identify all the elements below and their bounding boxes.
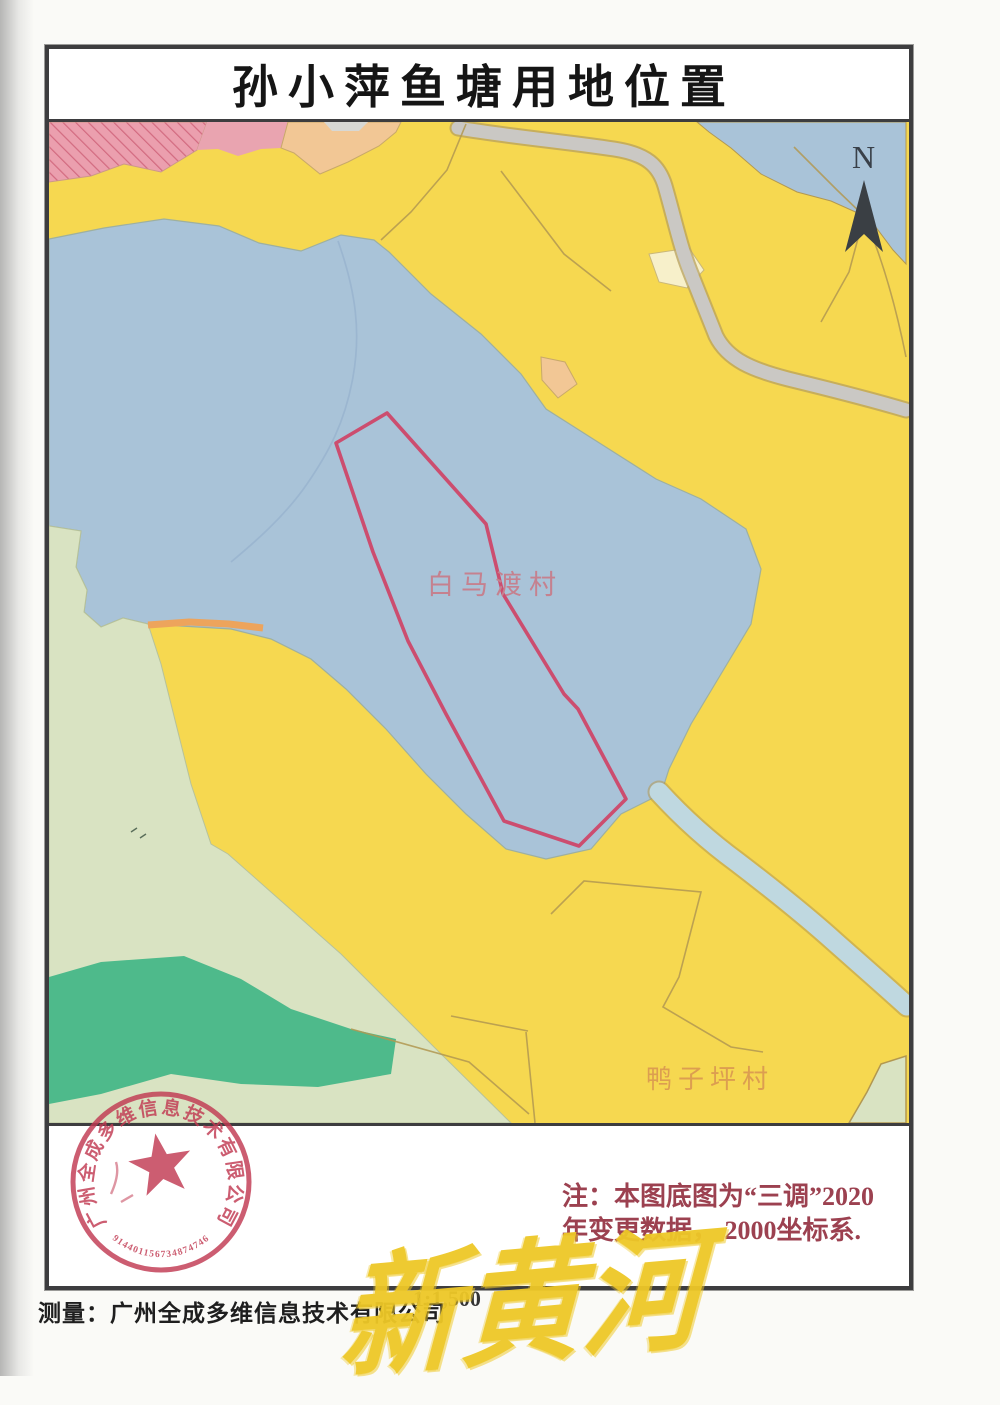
map-canvas: 白马渡村 鸭子坪村 N — [49, 122, 909, 1123]
seal-handmark — [111, 1162, 133, 1202]
seal-serial-text: 914401156734874746 — [110, 1233, 212, 1260]
scanned-map-page: { "title": { "text": "孙小萍鱼塘用地位置" }, "com… — [0, 0, 1000, 1376]
watermark-xinhuanghe: 新黄河 — [336, 1180, 711, 1405]
north-label: N — [852, 139, 875, 175]
village-label-yazipingcun: 鸭子坪村 — [646, 1065, 774, 1094]
seal-number-arc — [91, 1208, 232, 1257]
page-title: 孙小萍鱼塘用地位置 — [232, 51, 736, 117]
map-area: 白马渡村 鸭子坪村 N — [49, 122, 909, 1126]
scan-shadow — [0, 0, 34, 1376]
village-label-baimaducun: 白马渡村 — [427, 570, 563, 600]
company-seal: 广州全成多维信息技术有限公司 914401156734874746 — [51, 1072, 271, 1292]
title-bar: 孙小萍鱼塘用地位置 — [49, 49, 909, 122]
seal-circle — [73, 1094, 249, 1270]
seal-star-icon — [128, 1134, 190, 1196]
